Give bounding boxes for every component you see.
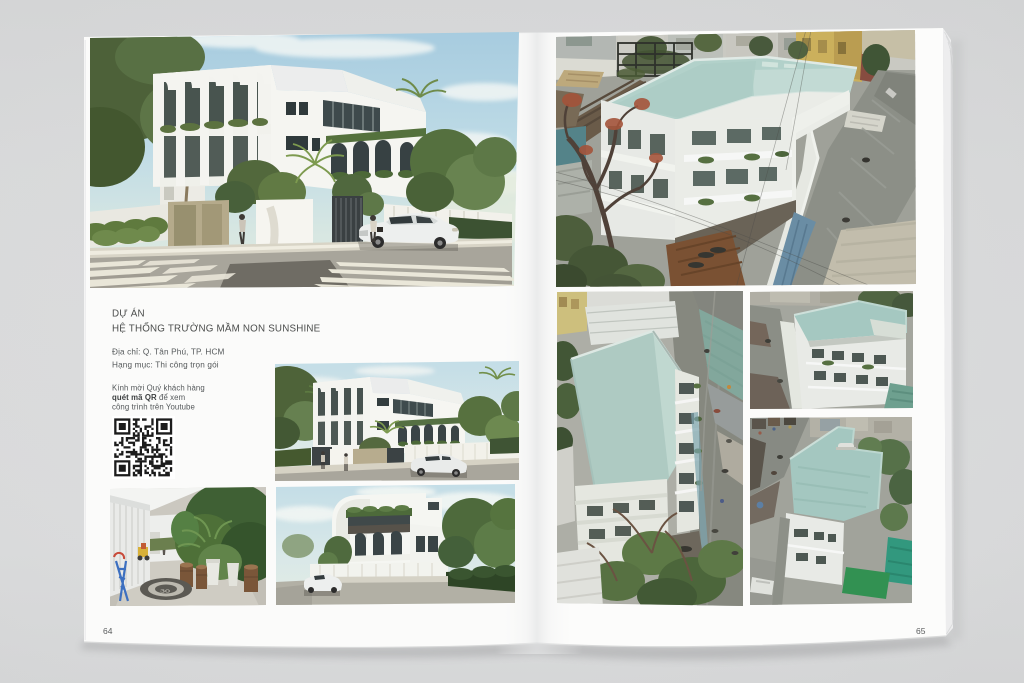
svg-text:Kính mời Quý khách hàng: Kính mời Quý khách hàng xyxy=(112,384,205,393)
svg-text:64: 64 xyxy=(103,626,113,636)
svg-text:65: 65 xyxy=(916,626,926,636)
svg-text:quét mã QR để xem: quét mã QR để xem xyxy=(112,393,185,402)
svg-text:công trình trên Youtube: công trình trên Youtube xyxy=(112,403,195,412)
svg-text:HỆ THỐNG TRƯỜNG MẦM NON SUNSH: HỆ THỐNG TRƯỜNG MẦM NON SUNSHINE xyxy=(112,323,321,335)
svg-text:Hạng mục: Thi công trọn gói: Hạng mục: Thi công trọn gói xyxy=(112,361,219,370)
svg-text:DỰ ÁN: DỰ ÁN xyxy=(112,309,145,320)
svg-text:Địa chỉ: Q. Tân Phú, TP. HCM: Địa chỉ: Q. Tân Phú, TP. HCM xyxy=(112,348,225,357)
svg-text:30: 30 xyxy=(160,588,170,594)
